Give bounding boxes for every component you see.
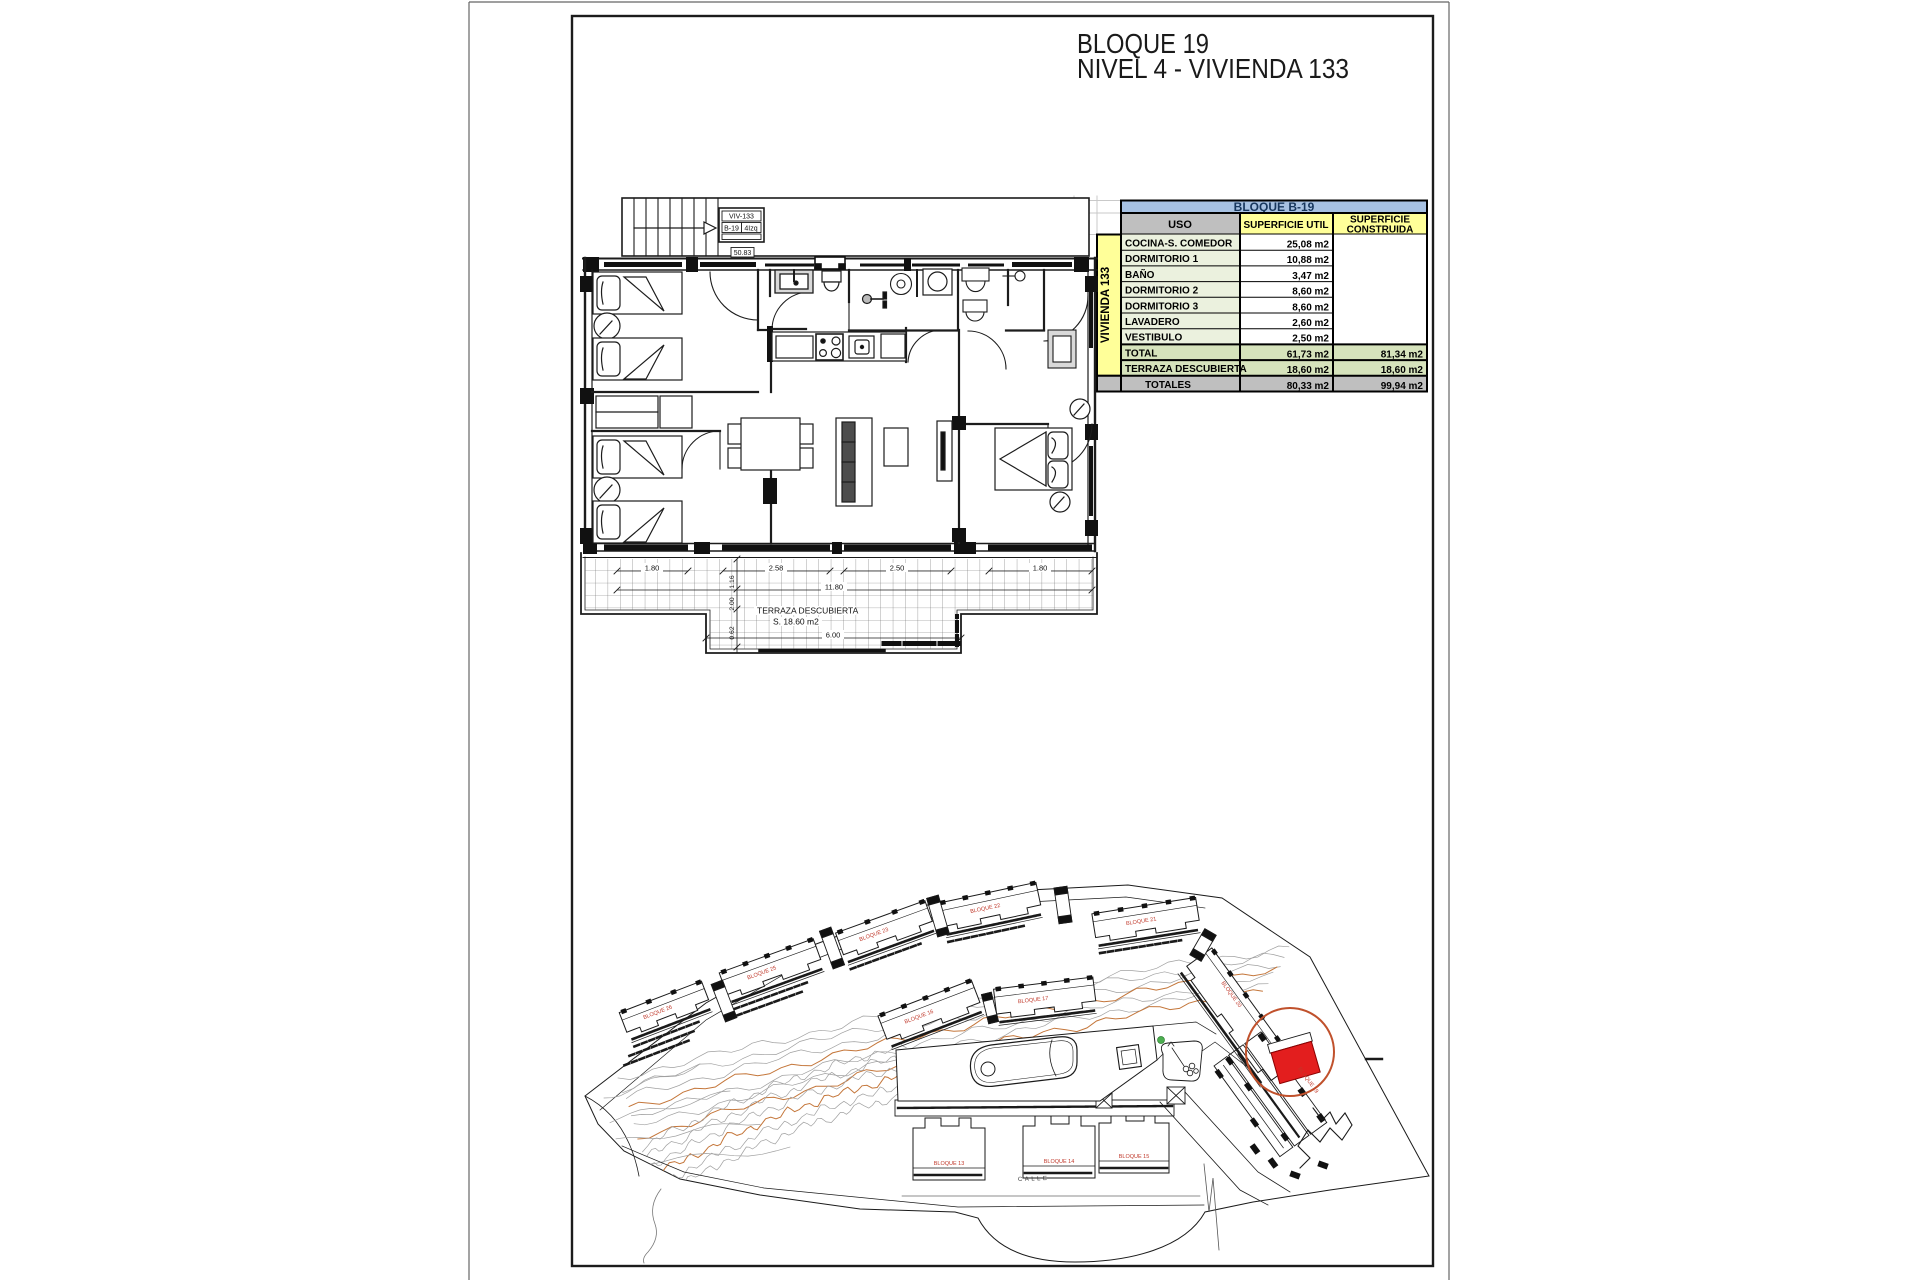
svg-text:VIVIENDA 133: VIVIENDA 133: [1100, 267, 1112, 343]
svg-text:25,08 m2: 25,08 m2: [1287, 240, 1330, 251]
svg-text:3,47 m2: 3,47 m2: [1292, 271, 1329, 282]
svg-text:DORMITORIO 1: DORMITORIO 1: [1125, 254, 1199, 265]
svg-text:2,50 m2: 2,50 m2: [1292, 334, 1329, 345]
svg-text:BLOQUE 15: BLOQUE 15: [1119, 1154, 1150, 1160]
svg-text:1.80: 1.80: [1033, 564, 1048, 573]
svg-text:BLOQUE 14: BLOQUE 14: [1044, 1159, 1075, 1165]
svg-text:NIVEL 4 - VIVIENDA 133: NIVEL 4 - VIVIENDA 133: [1077, 53, 1349, 84]
svg-text:0.62: 0.62: [729, 626, 736, 639]
svg-text:8,60 m2: 8,60 m2: [1292, 302, 1329, 313]
svg-text:80,33 m2: 80,33 m2: [1287, 381, 1330, 392]
svg-text:BLOQUE 13: BLOQUE 13: [934, 1161, 965, 1167]
svg-text:6.00: 6.00: [826, 631, 841, 640]
svg-text:TOTAL: TOTAL: [1125, 348, 1157, 359]
svg-text:8,60 m2: 8,60 m2: [1292, 287, 1329, 298]
svg-text:CONSTRUIDA: CONSTRUIDA: [1347, 225, 1414, 236]
svg-text:TERRAZA DESCUBIERTA: TERRAZA DESCUBIERTA: [757, 606, 859, 616]
svg-text:2,60 m2: 2,60 m2: [1292, 318, 1329, 329]
svg-text:VIV-133: VIV-133: [729, 214, 754, 221]
svg-text:2.58: 2.58: [769, 564, 784, 573]
svg-text:BAÑO: BAÑO: [1125, 268, 1155, 281]
svg-text:COCINA-S. COMEDOR: COCINA-S. COMEDOR: [1125, 239, 1233, 250]
svg-text:BLOQUE B-19: BLOQUE B-19: [1234, 200, 1315, 214]
svg-text:VESTIBULO: VESTIBULO: [1125, 333, 1182, 344]
svg-text:11.80: 11.80: [825, 583, 843, 592]
svg-text:4Izq: 4Izq: [744, 226, 757, 233]
svg-text:61,73 m2: 61,73 m2: [1287, 349, 1330, 360]
svg-text:SUPERFICIE UTIL: SUPERFICIE UTIL: [1243, 220, 1328, 231]
svg-text:TOTALES: TOTALES: [1145, 380, 1191, 391]
svg-text:DORMITORIO 2: DORMITORIO 2: [1125, 286, 1199, 297]
svg-text:1.80: 1.80: [645, 564, 660, 573]
svg-text:CALLE: CALLE: [1018, 1176, 1050, 1183]
svg-text:18,60 m2: 18,60 m2: [1381, 365, 1424, 376]
svg-text:99,94 m2: 99,94 m2: [1381, 381, 1424, 392]
svg-text:2.00: 2.00: [729, 597, 736, 610]
svg-text:LAVADERO: LAVADERO: [1125, 317, 1180, 328]
svg-text:TERRAZA DESCUBIERTA: TERRAZA DESCUBIERTA: [1125, 364, 1247, 375]
svg-text:2.50: 2.50: [890, 564, 905, 573]
svg-text:DORMITORIO 3: DORMITORIO 3: [1125, 301, 1199, 312]
svg-text:50.83: 50.83: [734, 250, 752, 257]
svg-text:18,60 m2: 18,60 m2: [1287, 365, 1330, 376]
svg-text:81,34 m2: 81,34 m2: [1381, 349, 1424, 360]
svg-text:1.16: 1.16: [729, 575, 736, 588]
svg-text:USO: USO: [1168, 219, 1192, 231]
svg-text:10,88 m2: 10,88 m2: [1287, 255, 1330, 266]
svg-text:B-19: B-19: [724, 226, 739, 233]
svg-text:S. 18.60 m2: S. 18.60 m2: [773, 617, 819, 627]
